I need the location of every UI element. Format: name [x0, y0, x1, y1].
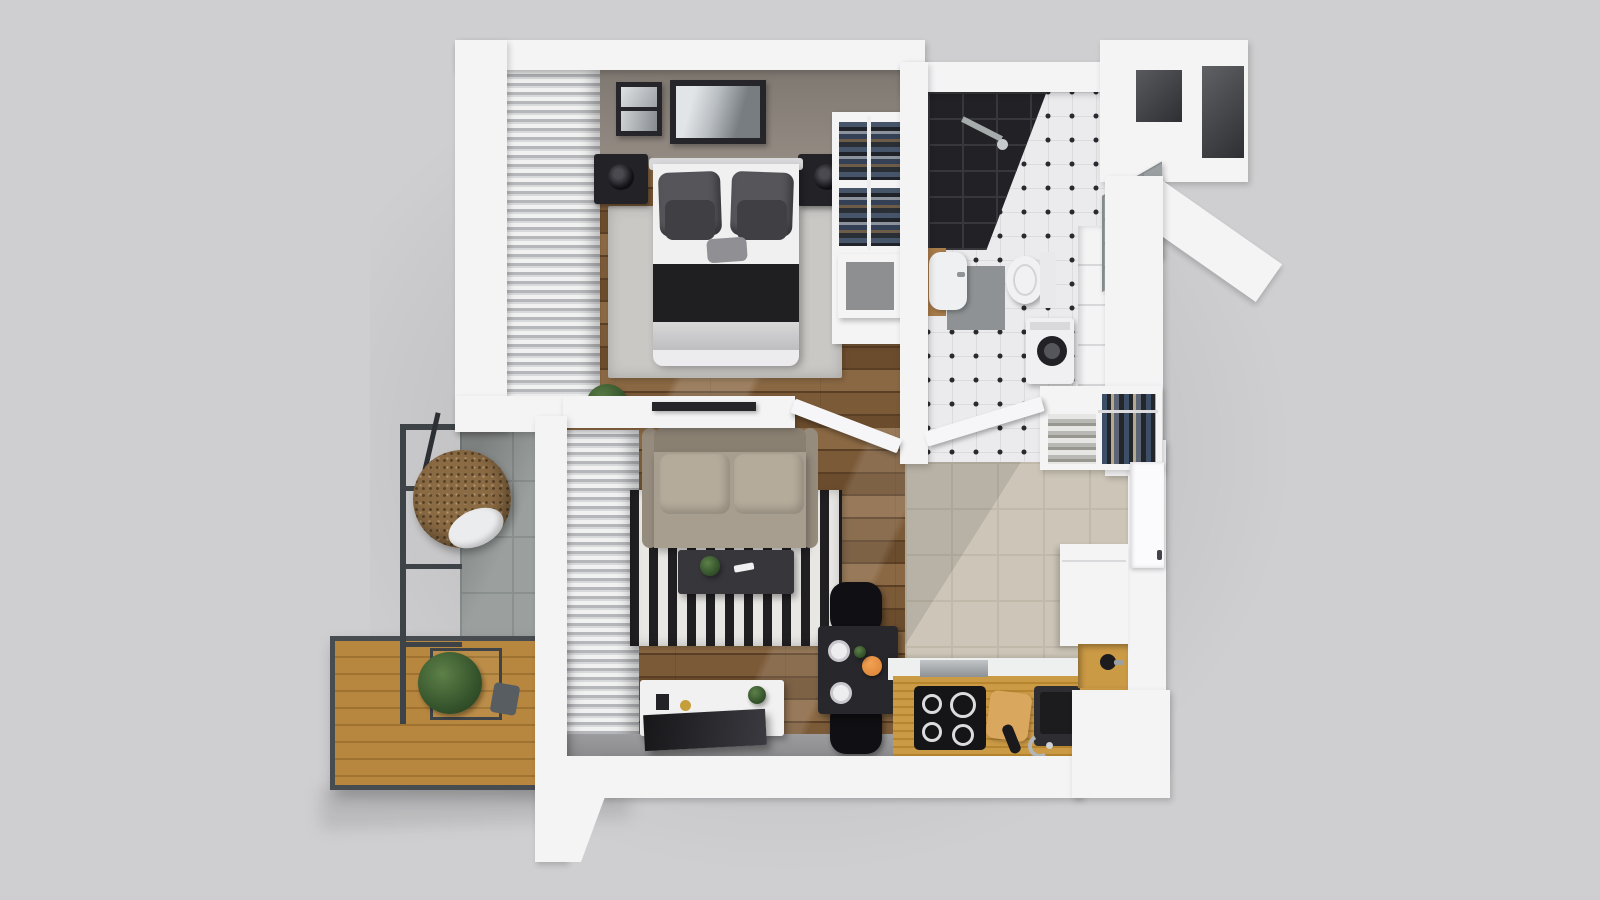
wall-niche: [1202, 66, 1244, 158]
closet-towels: [1048, 414, 1096, 464]
wall-niche: [1136, 70, 1182, 122]
faucet-base: [1046, 742, 1053, 749]
bedroom-window-blinds: [507, 70, 602, 428]
sideboard-card: [656, 694, 669, 710]
frame-art: [621, 111, 657, 131]
wall-top-bathroom: [900, 62, 1112, 92]
living-window-blinds: [565, 430, 639, 758]
wall-top-bedroom: [455, 40, 925, 70]
wardrobe-rail: [867, 116, 871, 250]
balcony-plant: [418, 652, 482, 714]
bed-foot: [653, 350, 799, 366]
frame-art: [676, 86, 760, 138]
dinner-plate: [828, 640, 850, 662]
railing-bar: [404, 642, 462, 647]
burner: [952, 724, 974, 746]
bed-pillow-left-front: [665, 200, 715, 240]
bathroom-sink: [929, 252, 967, 310]
frame-art: [621, 87, 657, 107]
dinner-plate: [830, 682, 852, 704]
sofa-cushion-left: [660, 454, 730, 514]
shower-head: [997, 139, 1008, 150]
toilet-tank: [1040, 252, 1056, 308]
dining-table: [818, 626, 898, 714]
hallway-closet: [1040, 386, 1162, 470]
closet-hanging-clothes: [1102, 394, 1156, 464]
railing-bar: [404, 564, 462, 569]
floorplan-render: [0, 0, 1600, 900]
wall-left-bedroom: [455, 40, 507, 432]
wall-bottom: [600, 756, 1082, 798]
bottle-neck: [1114, 660, 1124, 665]
partition-console-shelf: [652, 402, 756, 411]
cabinet-front-line: [1062, 560, 1126, 562]
wall-alcove-block: [1100, 40, 1248, 182]
table-flowers: [854, 646, 866, 658]
fruit-bowl: [862, 656, 882, 676]
burner: [922, 722, 942, 742]
toilet-seat-ring: [1013, 264, 1037, 296]
bed-folded-sheet: [653, 322, 799, 352]
railing-post: [400, 424, 406, 724]
table-lamp-left: [608, 164, 634, 190]
picture-frame-small: [616, 82, 662, 136]
cooker-hood: [920, 660, 988, 677]
washer-control-panel: [1030, 322, 1070, 330]
washer-door-glass: [1044, 343, 1060, 359]
sideboard-plant: [748, 686, 766, 704]
burner: [950, 692, 976, 718]
closet-rail: [1098, 410, 1158, 413]
dresser-top: [846, 262, 894, 310]
watering-can: [490, 682, 521, 716]
entry-door-handle: [1157, 550, 1162, 560]
wall-bedroom-bathroom-divider: [900, 62, 928, 464]
burner: [922, 694, 942, 714]
sink-faucet: [957, 272, 965, 277]
coffee-table-plant: [700, 556, 720, 576]
bed-blanket: [653, 264, 799, 322]
bed-accent-cushion: [706, 237, 748, 264]
bed-pillow-right-front: [737, 200, 787, 240]
wall-partition-bedroom-living: [563, 396, 795, 428]
kitchen-sink-basin: [1040, 692, 1074, 734]
sofa-cushion-right: [734, 454, 804, 514]
picture-frame-large: [670, 80, 766, 144]
wall-mounted-tv: [643, 709, 767, 751]
wall-corner-bottom-right: [1072, 690, 1170, 798]
sideboard-gold-dish: [680, 700, 691, 711]
